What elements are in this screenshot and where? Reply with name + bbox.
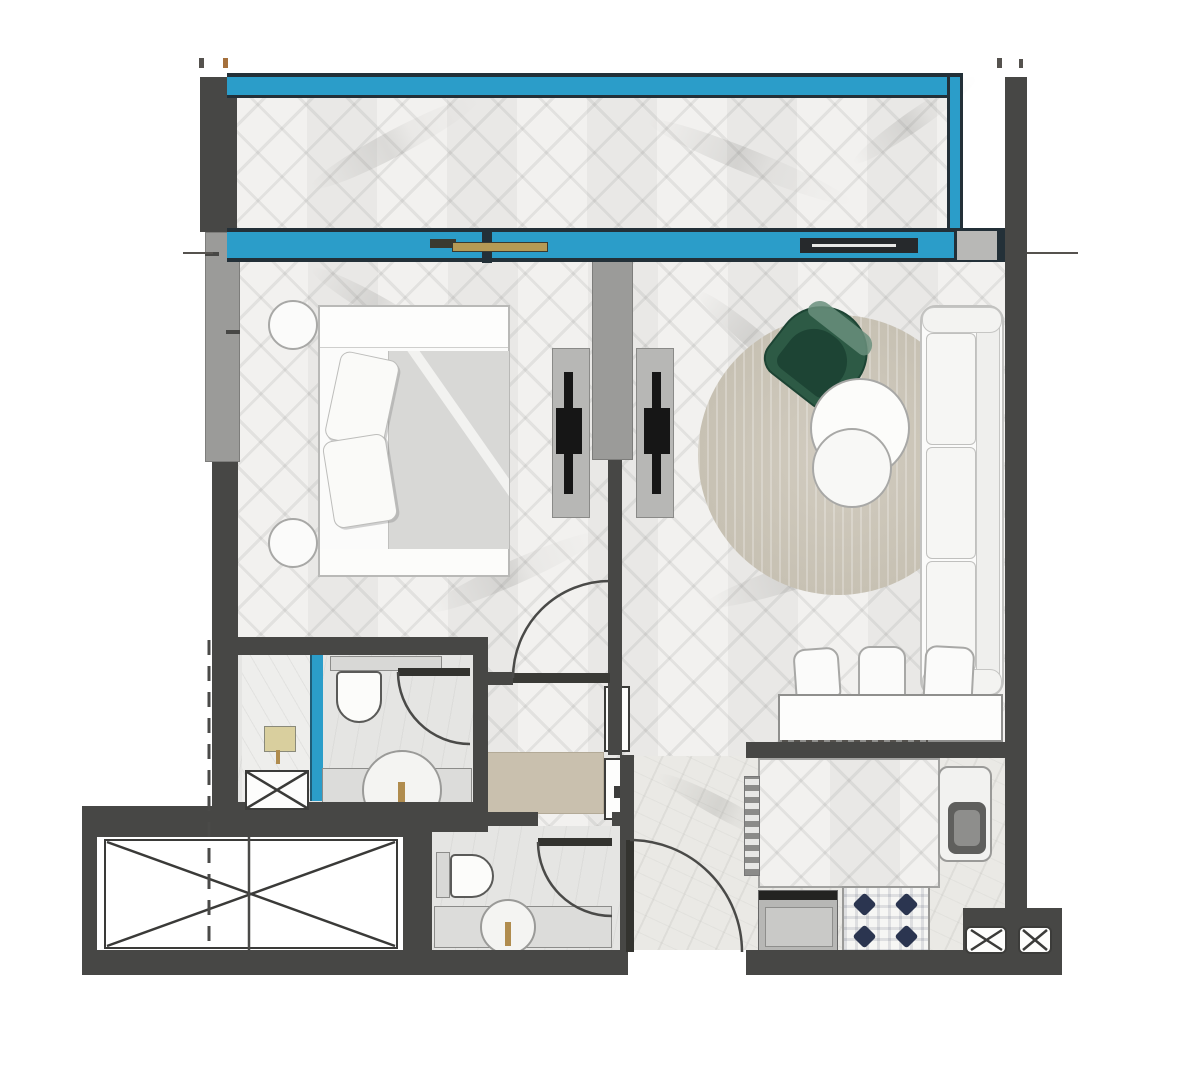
annotation-overlay: [0, 0, 1202, 1065]
dimension-tick: [1019, 59, 1023, 68]
dimension-tick: [997, 58, 1002, 68]
door-swing-master-bath: [398, 672, 470, 744]
door-swing-bedroom: [513, 581, 610, 678]
door-swing-guest-bath: [538, 842, 612, 916]
dimension-tick-orange: [223, 58, 228, 68]
floor-plan: [0, 0, 1202, 1065]
dimension-tick: [199, 58, 204, 68]
door-swing-entrance: [630, 840, 742, 952]
